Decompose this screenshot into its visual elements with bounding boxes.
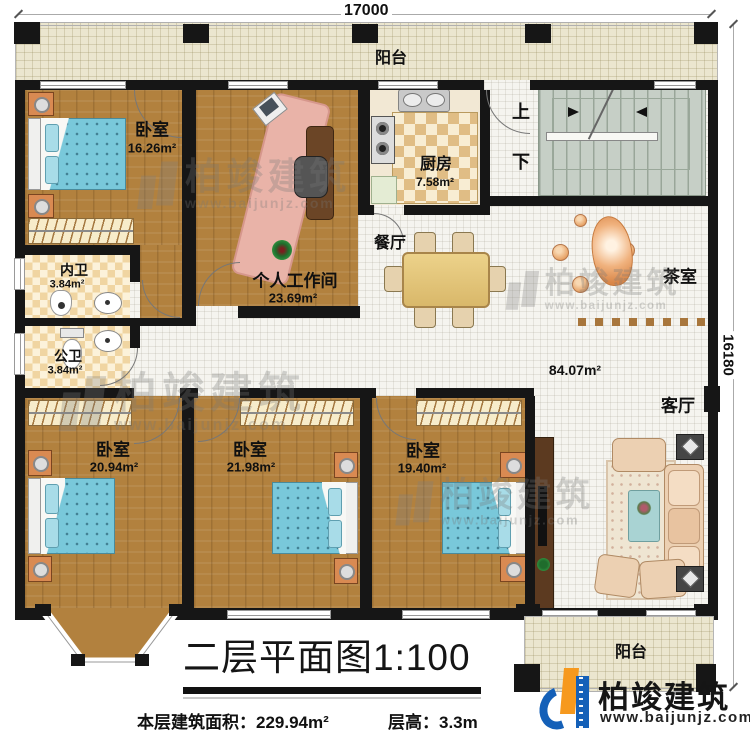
nightstand — [334, 558, 358, 584]
window — [378, 81, 438, 89]
title-underline — [183, 687, 481, 694]
stair-arrow — [636, 107, 647, 117]
pillow — [498, 488, 511, 516]
window — [227, 610, 331, 619]
room-label: 卧室 — [233, 442, 267, 459]
floor-area-label: 本层建筑面积： — [137, 713, 256, 732]
tea-stool — [572, 276, 589, 293]
room-area: 19.40m² — [398, 462, 446, 475]
window — [14, 333, 25, 375]
dotted-divider — [578, 318, 706, 326]
room-area: 84.07m² — [549, 363, 601, 377]
room-label: 厨房 — [420, 157, 452, 173]
room-area: 16.26m² — [128, 142, 176, 155]
tv-icon — [538, 486, 547, 546]
floor-height-label: 层高： — [388, 713, 439, 732]
wall — [480, 196, 710, 206]
room-label: 卧室 — [96, 442, 130, 459]
nightstand — [500, 556, 526, 582]
wall — [238, 306, 360, 318]
dimension-tick — [707, 9, 716, 18]
logo-building-blue — [576, 676, 589, 728]
nightstand — [334, 452, 358, 478]
dimension-width: 17000 — [341, 3, 392, 19]
bay-window — [35, 604, 185, 688]
stair-handrail — [546, 132, 658, 141]
nightstand — [28, 450, 52, 476]
balcony-bottom-label: 阳台 — [615, 645, 647, 661]
room-area: 3.84m² — [48, 366, 83, 377]
wall — [25, 245, 140, 255]
nightstand — [28, 92, 54, 116]
brand-logo: 柏竣建筑 www.baijunjz.com — [540, 664, 740, 739]
wardrobe — [28, 218, 134, 244]
sink-drain — [105, 338, 110, 343]
wall — [182, 90, 196, 326]
sofa-cushion — [668, 508, 700, 544]
room-area: 23.69m² — [269, 292, 317, 305]
room-label: 内卫 — [60, 263, 88, 277]
sink-basin — [426, 93, 445, 107]
column — [704, 386, 720, 412]
floor-plan: 17000 16180 阳台 上 下 — [0, 0, 750, 743]
tea-stool — [574, 214, 587, 227]
stair-arrow — [568, 107, 579, 117]
room-label: 餐厅 — [374, 236, 406, 252]
sofa — [593, 553, 640, 598]
pillow — [45, 518, 59, 548]
plant-icon — [272, 240, 292, 260]
sofa — [612, 438, 666, 472]
page-title: 二层平面图1:100 — [183, 638, 471, 679]
office-chair — [294, 156, 328, 198]
room-label: 茶室 — [663, 269, 697, 286]
pillow — [45, 124, 59, 152]
stove-burner — [376, 142, 389, 155]
wall — [360, 396, 372, 608]
wardrobe — [28, 400, 132, 426]
wall — [182, 396, 194, 608]
bed-headboard — [345, 482, 358, 554]
plant-icon — [537, 558, 550, 571]
pillow — [328, 488, 342, 516]
stairs-down-label: 下 — [512, 153, 530, 171]
room-area: 3.84m² — [50, 280, 85, 291]
sink-basin — [403, 93, 422, 107]
sink-drain — [105, 300, 110, 305]
toilet-tank — [60, 328, 84, 338]
floor-area-value: 229.94m² — [256, 713, 329, 732]
wall — [240, 388, 376, 398]
pillow — [328, 520, 342, 548]
pillow — [45, 156, 59, 184]
toilet-drain — [58, 302, 65, 309]
door-opening — [484, 80, 530, 90]
coffee-table — [628, 490, 660, 542]
sofa-cushion — [668, 470, 700, 506]
wall — [15, 388, 134, 398]
balcony-top-label: 阳台 — [375, 51, 407, 67]
coffee-table-flowers — [636, 500, 652, 516]
dining-table — [402, 252, 490, 308]
window — [402, 610, 490, 619]
room-label: 卧室 — [135, 122, 169, 139]
room-area: 20.94m² — [90, 461, 138, 474]
floor-height-value: 3.3m — [439, 713, 478, 732]
room-label: 个人工作间 — [253, 273, 338, 290]
column — [183, 24, 209, 43]
dining-chair — [384, 266, 404, 292]
window — [14, 258, 25, 290]
column — [525, 24, 551, 43]
wardrobe — [416, 400, 522, 426]
wall — [404, 205, 490, 215]
window — [228, 81, 288, 89]
title-underline-shadow — [183, 697, 481, 699]
pillow — [45, 484, 59, 514]
wall — [358, 205, 374, 215]
window — [654, 81, 696, 89]
floor-area-text: 本层建筑面积：229.94m² — [137, 708, 329, 733]
room-area: 21.98m² — [227, 461, 275, 474]
bed-headboard — [28, 478, 41, 554]
room-label: 客厅 — [661, 398, 695, 415]
column — [14, 22, 40, 44]
room-label: 卧室 — [406, 443, 440, 460]
column — [694, 22, 718, 44]
wall — [358, 90, 370, 215]
wall — [525, 396, 535, 608]
floor-height-text: 层高：3.3m — [388, 708, 478, 733]
room-label: 公卫 — [54, 349, 82, 363]
room-area: 7.58m² — [416, 176, 454, 188]
column — [514, 664, 540, 692]
stove-burner — [376, 122, 389, 135]
nightstand — [28, 556, 52, 582]
pillow — [498, 520, 511, 548]
dimension-height: 16180 — [721, 331, 736, 379]
wall — [15, 318, 196, 326]
wall — [708, 80, 718, 620]
brand-url: www.baijunjz.com — [600, 709, 750, 726]
column — [352, 24, 378, 43]
wall — [480, 90, 490, 206]
wall — [416, 388, 534, 398]
nightstand — [28, 194, 54, 218]
tea-stool — [552, 244, 569, 261]
wardrobe — [240, 400, 354, 426]
bed-headboard — [28, 118, 41, 190]
brand-logo-icon — [540, 664, 594, 734]
kitchen-appliance — [371, 176, 397, 204]
wall — [130, 245, 140, 282]
window — [40, 81, 126, 89]
nightstand — [500, 452, 526, 478]
